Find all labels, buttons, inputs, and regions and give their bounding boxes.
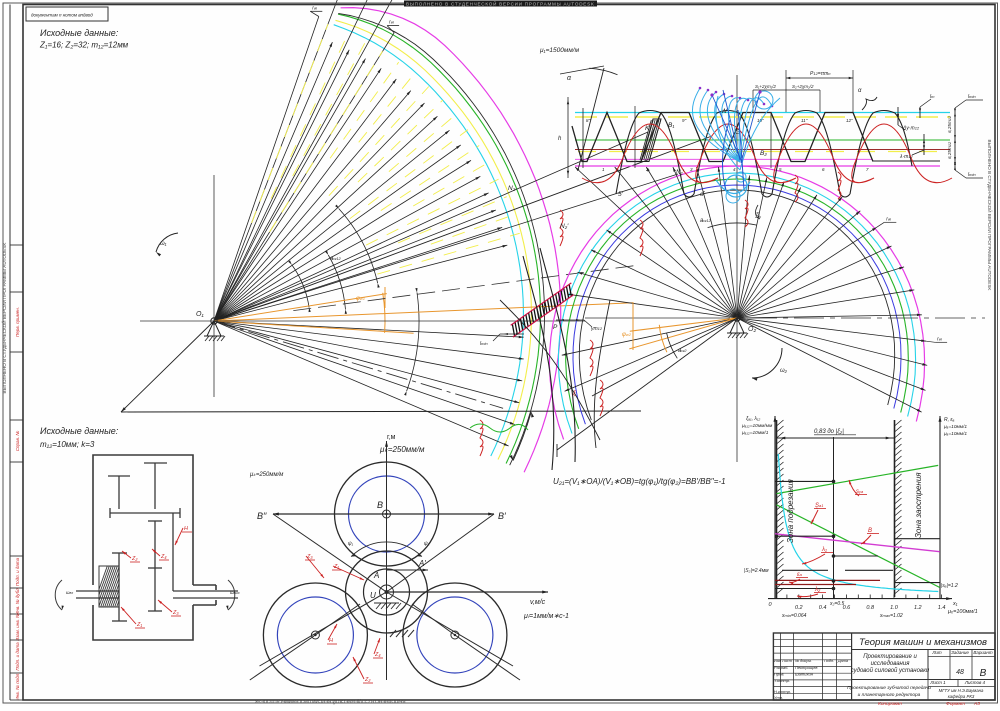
svg-text:A: A bbox=[373, 571, 379, 580]
svg-text:Исходные данные:: Исходные данные: bbox=[40, 28, 119, 38]
svg-text:μ₁=1500мм/м: μ₁=1500мм/м bbox=[539, 47, 580, 54]
svg-text:Шатихин: Шатихин bbox=[795, 672, 814, 677]
svg-text:ψ₂: ψ₂ bbox=[424, 541, 430, 547]
svg-text:Z₄: Z₄ bbox=[374, 652, 381, 658]
svg-text:O₂: O₂ bbox=[748, 326, 756, 333]
svg-text:Т.контр.: Т.контр. bbox=[774, 678, 790, 683]
svg-text:x₁: x₁ bbox=[952, 601, 958, 607]
svg-text:Проектирование зубчатой переда: Проектирование зубчатой передачи bbox=[847, 684, 931, 691]
svg-text:μₐ₁₂=10мм/мм: μₐ₁₂=10мм/мм bbox=[741, 423, 773, 429]
svg-text:S₂+2χm₂/2: S₂+2χm₂/2 bbox=[792, 84, 814, 89]
svg-text:Теория машин и механизмов: Теория машин и механизмов bbox=[859, 637, 987, 648]
svg-text:S₁+2χm₁/2: S₁+2χm₁/2 bbox=[755, 84, 776, 89]
svg-text:R, εₐ: R, εₐ bbox=[944, 417, 955, 423]
svg-text:H: H bbox=[329, 638, 333, 644]
svg-text:ω₁: ω₁ bbox=[160, 241, 167, 247]
svg-text:Листов 4: Листов 4 bbox=[964, 680, 986, 685]
svg-text:P: P bbox=[553, 324, 558, 331]
svg-text:Пров.: Пров. bbox=[774, 672, 785, 677]
svg-text:Исходные данные:: Исходные данные: bbox=[40, 426, 119, 436]
svg-text:Инв. № дубл.: Инв. № дубл. bbox=[15, 587, 20, 615]
svg-text:11'': 11'' bbox=[801, 118, 808, 123]
svg-text:А3: А3 bbox=[973, 701, 980, 706]
svg-text:Дата: Дата bbox=[837, 659, 848, 663]
svg-text:Z₂: Z₂ bbox=[364, 677, 371, 683]
svg-text:B₂: B₂ bbox=[760, 150, 767, 157]
svg-text:Z₁: Z₁ bbox=[333, 564, 339, 570]
svg-text:B: B bbox=[377, 500, 383, 510]
svg-text:P12=πmn: P12=πmn bbox=[810, 71, 831, 77]
svg-text:Формат: Формат bbox=[946, 701, 965, 706]
svg-text:Н.контр.: Н.контр. bbox=[774, 689, 791, 694]
svg-text:|S₂|=2.4мм: |S₂|=2.4мм bbox=[744, 568, 769, 574]
svg-text:Z₂: Z₂ bbox=[131, 556, 138, 562]
svg-text:5′: 5′ bbox=[618, 191, 624, 198]
svg-text:Задание: Задание bbox=[951, 650, 969, 655]
svg-text:v,м/с: v,м/с bbox=[530, 599, 546, 606]
svg-text:Подп. и дата: Подп. и дата bbox=[15, 557, 20, 586]
svg-text:ωвых: ωвых bbox=[230, 590, 240, 595]
svg-text:ωвх: ωвх bbox=[66, 590, 73, 595]
svg-text:S̃k: S̃k bbox=[755, 213, 762, 220]
svg-text:μₖ=250мм/м: μₖ=250мм/м bbox=[249, 472, 283, 478]
svg-text:Z₃: Z₃ bbox=[172, 610, 179, 616]
svg-text:μₐ=10мм/1: μₐ=10мм/1 bbox=[943, 431, 967, 437]
svg-text:Инв. № подл.: Инв. № подл. bbox=[15, 673, 20, 701]
svg-text:В: В bbox=[980, 668, 987, 679]
svg-text:Утв.: Утв. bbox=[774, 695, 783, 700]
svg-text:Z₃: Z₃ bbox=[306, 554, 313, 560]
svg-text:B₁: B₁ bbox=[668, 122, 674, 129]
svg-text:г,м: г,м bbox=[387, 434, 396, 441]
svg-text:9'': 9'' bbox=[682, 118, 686, 123]
svg-text:Справ. №: Справ. № bbox=[15, 431, 20, 452]
svg-text:ВЫПОЛНЕНО В СТУДЕНЧЕСКОЙ ВЕРСИ: ВЫПОЛНЕНО В СТУДЕНЧЕСКОЙ ВЕРСИИ ПРОГРАММ… bbox=[254, 699, 406, 706]
svg-text:6,25m12: 6,25m12 bbox=[947, 115, 952, 133]
svg-text:ВЫПОЛНЕНО В СТУДЕНЧЕСКОЙ ВЕРСИ: ВЫПОЛНЕНО В СТУДЕНЧЕСКОЙ ВЕРСИИ ПРОГРАММ… bbox=[987, 140, 994, 292]
svg-text:Пектрищев: Пектрищев bbox=[795, 665, 818, 670]
svg-text:N₁′: N₁′ bbox=[676, 169, 685, 176]
svg-text:48: 48 bbox=[956, 669, 964, 676]
svg-text:ВЫПОЛНЕНО В СТУДЕНЧЕСКОЙ ВЕРСИ: ВЫПОЛНЕНО В СТУДЕНЧЕСКОЙ ВЕРСИИ ПРОГРАММ… bbox=[406, 0, 595, 6]
svg-text:ψ₁: ψ₁ bbox=[348, 541, 354, 547]
svg-text:Z₁=16; Z₂=32; m₁₂=12мм: Z₁=16; Z₂=32; m₁₂=12мм bbox=[39, 41, 129, 50]
svg-text:Разраб.: Разраб. bbox=[774, 665, 788, 670]
svg-text:6,25m12: 6,25m12 bbox=[947, 141, 952, 159]
svg-text:B′: B′ bbox=[498, 511, 506, 521]
svg-text:2: 2 bbox=[645, 167, 649, 172]
svg-text:N₂′: N₂′ bbox=[560, 223, 569, 230]
svg-text:1.4: 1.4 bbox=[938, 605, 946, 611]
svg-text:№ докум.: № докум. bbox=[795, 659, 812, 663]
svg-text:ξ: ξ bbox=[573, 391, 576, 397]
svg-text:A′: A′ bbox=[418, 559, 426, 568]
svg-text:1.0: 1.0 bbox=[890, 605, 899, 611]
svg-text:12'': 12'' bbox=[846, 118, 853, 123]
svg-text:0.4: 0.4 bbox=[819, 605, 827, 611]
svg-text:U: U bbox=[370, 591, 376, 600]
svg-text:0.2: 0.2 bbox=[795, 605, 803, 611]
svg-text:μₖ=250мм/м: μₖ=250мм/м bbox=[379, 445, 425, 454]
svg-text:8'': 8'' bbox=[586, 118, 590, 123]
svg-text:α: α bbox=[858, 88, 862, 94]
svg-text:N₂: N₂ bbox=[508, 185, 516, 192]
svg-text:и планетарного редуктора: и планетарного редуктора bbox=[858, 692, 921, 698]
svg-text:ВЫПОЛНЕНО В СТУДЕНЧЕСКОЙ ВЕРСИ: ВЫПОЛНЕНО В СТУДЕНЧЕСКОЙ ВЕРСИИ ПРОГРАММ… bbox=[0, 242, 7, 394]
svg-text:μₐ=10мм/1: μₐ=10мм/1 bbox=[943, 424, 967, 430]
svg-text:кафедра РК3: кафедра РК3 bbox=[948, 694, 975, 699]
svg-text:1.2: 1.2 bbox=[914, 605, 922, 611]
svg-text:Z₁: Z₁ bbox=[136, 622, 142, 628]
svg-text:Подп. и дата: Подп. и дата bbox=[15, 642, 20, 671]
svg-text:Взам. инв. №: Взам. инв. № bbox=[15, 613, 20, 641]
svg-text:H: H bbox=[184, 526, 188, 532]
svg-text:Изм Лист: Изм Лист bbox=[774, 659, 792, 663]
svg-text:B′′: B′′ bbox=[257, 511, 267, 521]
svg-text:K: K bbox=[645, 125, 650, 132]
svg-text:Копировал: Копировал bbox=[878, 701, 902, 706]
svg-text:0,83 до |ξ₂|: 0,83 до |ξ₂| bbox=[814, 429, 844, 435]
svg-text:Подп.: Подп. bbox=[824, 659, 834, 663]
svg-text:x₂=0.5: x₂=0.5 bbox=[829, 601, 844, 607]
svg-text:m₁₂=10мм; k=3: m₁₂=10мм; k=3 bbox=[40, 440, 95, 449]
svg-text:Проектирование и: Проектирование и bbox=[863, 654, 917, 660]
svg-text:U₂₁=(V₁∗OA)/(V₁∗OB)=tg(φ₁)/tg(: U₂₁=(V₁∗OA)/(V₁∗OB)=tg(φ₁)/tg(φ₂)=BB′/BB… bbox=[553, 477, 726, 486]
svg-text:Z₄: Z₄ bbox=[160, 554, 167, 560]
svg-text:Лист 1: Лист 1 bbox=[929, 680, 946, 685]
svg-text:Перв. примен.: Перв. примен. bbox=[15, 307, 20, 337]
svg-text:O₁: O₁ bbox=[196, 311, 204, 318]
svg-text:исследования: исследования bbox=[871, 661, 911, 667]
svg-text:МГТУ им Н.Э.Баумана: МГТУ им Н.Э.Баумана bbox=[939, 688, 984, 693]
svg-text:μₗ=1мм/м∗с-1: μₗ=1мм/м∗с-1 bbox=[523, 613, 569, 620]
svg-text:судовой силовой установки: судовой силовой установки bbox=[851, 667, 930, 674]
svg-text:Вариант: Вариант bbox=[973, 650, 992, 655]
svg-text:|sₐ|=1.2: |sₐ|=1.2 bbox=[941, 583, 958, 589]
svg-text:документам п нотом впдвод: документам п нотом впдвод bbox=[31, 13, 93, 18]
svg-text:ξₐ₁, λ₁₂: ξₐ₁, λ₁₂ bbox=[746, 416, 760, 422]
svg-text:0.8: 0.8 bbox=[866, 605, 875, 611]
svg-text:μₓ=100мм/1: μₓ=100мм/1 bbox=[947, 609, 978, 615]
svg-text:ω₂: ω₂ bbox=[780, 368, 788, 374]
svg-text:Зона подрезания: Зона подрезания bbox=[786, 479, 795, 543]
svg-text:μₐ₁₂=10мм/1: μₐ₁₂=10мм/1 bbox=[741, 430, 769, 436]
svg-text:Лит: Лит bbox=[931, 650, 942, 655]
svg-text:Зона заострения: Зона заострения bbox=[914, 472, 923, 538]
